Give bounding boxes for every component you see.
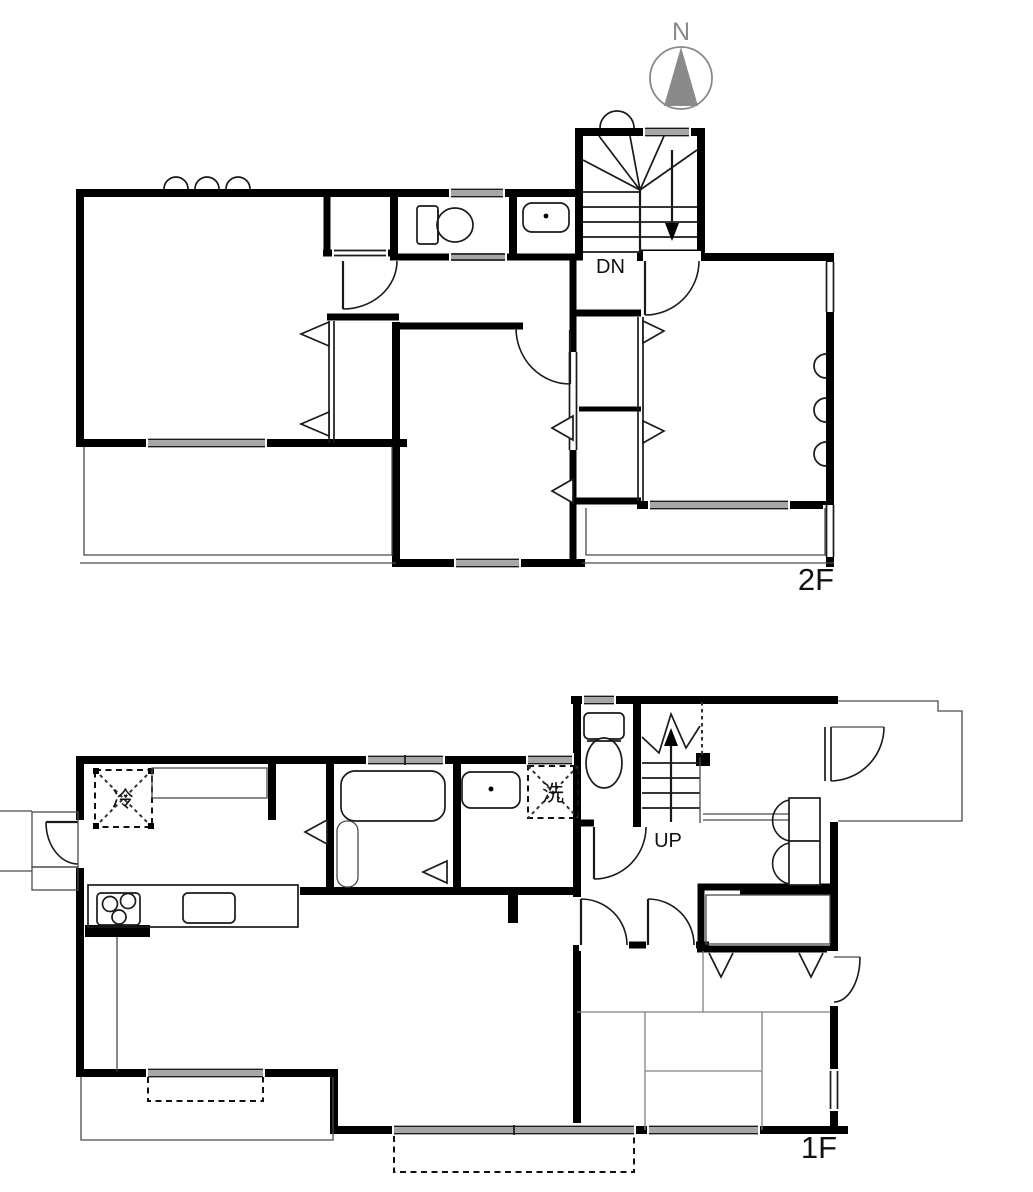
bathtub-icon [341,771,445,821]
washroom: 洗 [462,766,578,818]
kitchen-counter [88,885,298,927]
floor-2f-label: 2F [798,562,834,597]
toilet-tank-icon [584,713,624,739]
sliding-door-marker [305,820,327,844]
vent-arc-icon [195,177,219,189]
toilet-bowl-icon [437,208,473,242]
refrigerator-label: 冷 [112,787,134,812]
balcony-2f-right [582,508,834,563]
toilet-2f [417,206,473,244]
kitchen-sink-icon [183,893,235,923]
washing-machine: 洗 [528,766,578,818]
kitchen: 冷 [88,768,327,1071]
stairs-up-label: UP [654,830,682,852]
compass-north-label: N [672,18,690,46]
stairs-down-label: DN [596,256,625,278]
washer-label: 洗 [542,781,564,806]
toilet-tank-icon [417,206,438,244]
stairwell-1f: UP [642,702,702,852]
refrigerator: 冷 [93,768,154,829]
back-door [0,811,87,890]
vent-arc-icon [226,177,250,189]
sliding-door-marker [301,412,329,436]
floor-plan-drawing: N [0,0,1033,1192]
vent-arc-icon [600,111,634,128]
floor-plan-2f: DN [76,111,837,597]
vent-arcs-2f [164,177,826,466]
counter [152,768,267,798]
front-door [823,724,884,784]
floor-plan-1f: UP [0,694,962,1172]
genkan [703,798,820,885]
sliding-door-marker [552,416,573,440]
closet-door-marker [709,953,733,977]
basin-2f [523,203,569,232]
entrance-porch [834,701,962,821]
sliding-door-marker [301,322,329,346]
closet-door-marker [799,953,823,977]
sliding-door-marker [643,421,664,443]
stair-treads-2f [583,136,697,253]
toilet-bowl-icon [586,738,622,788]
vent-arc-icon [814,354,826,378]
sliding-door-marker [423,861,447,883]
compass: N [650,18,712,109]
windows-2f [146,186,837,569]
balcony-2f-left [80,447,396,563]
bath-door-leaf [337,821,358,887]
floor-1f-label: 1F [801,1130,837,1165]
compass-needle-icon [664,47,698,106]
floor-plan-page: N [0,0,1033,1192]
sliding-door-marker [552,479,573,503]
sliding-door-marker [643,321,664,343]
closets-2f [301,248,664,503]
tatami-room [577,895,860,1130]
bathroom [337,771,447,887]
vent-arc-icon [814,442,826,466]
vent-arc-icon [164,177,188,189]
vent-arc-icon [814,398,826,422]
